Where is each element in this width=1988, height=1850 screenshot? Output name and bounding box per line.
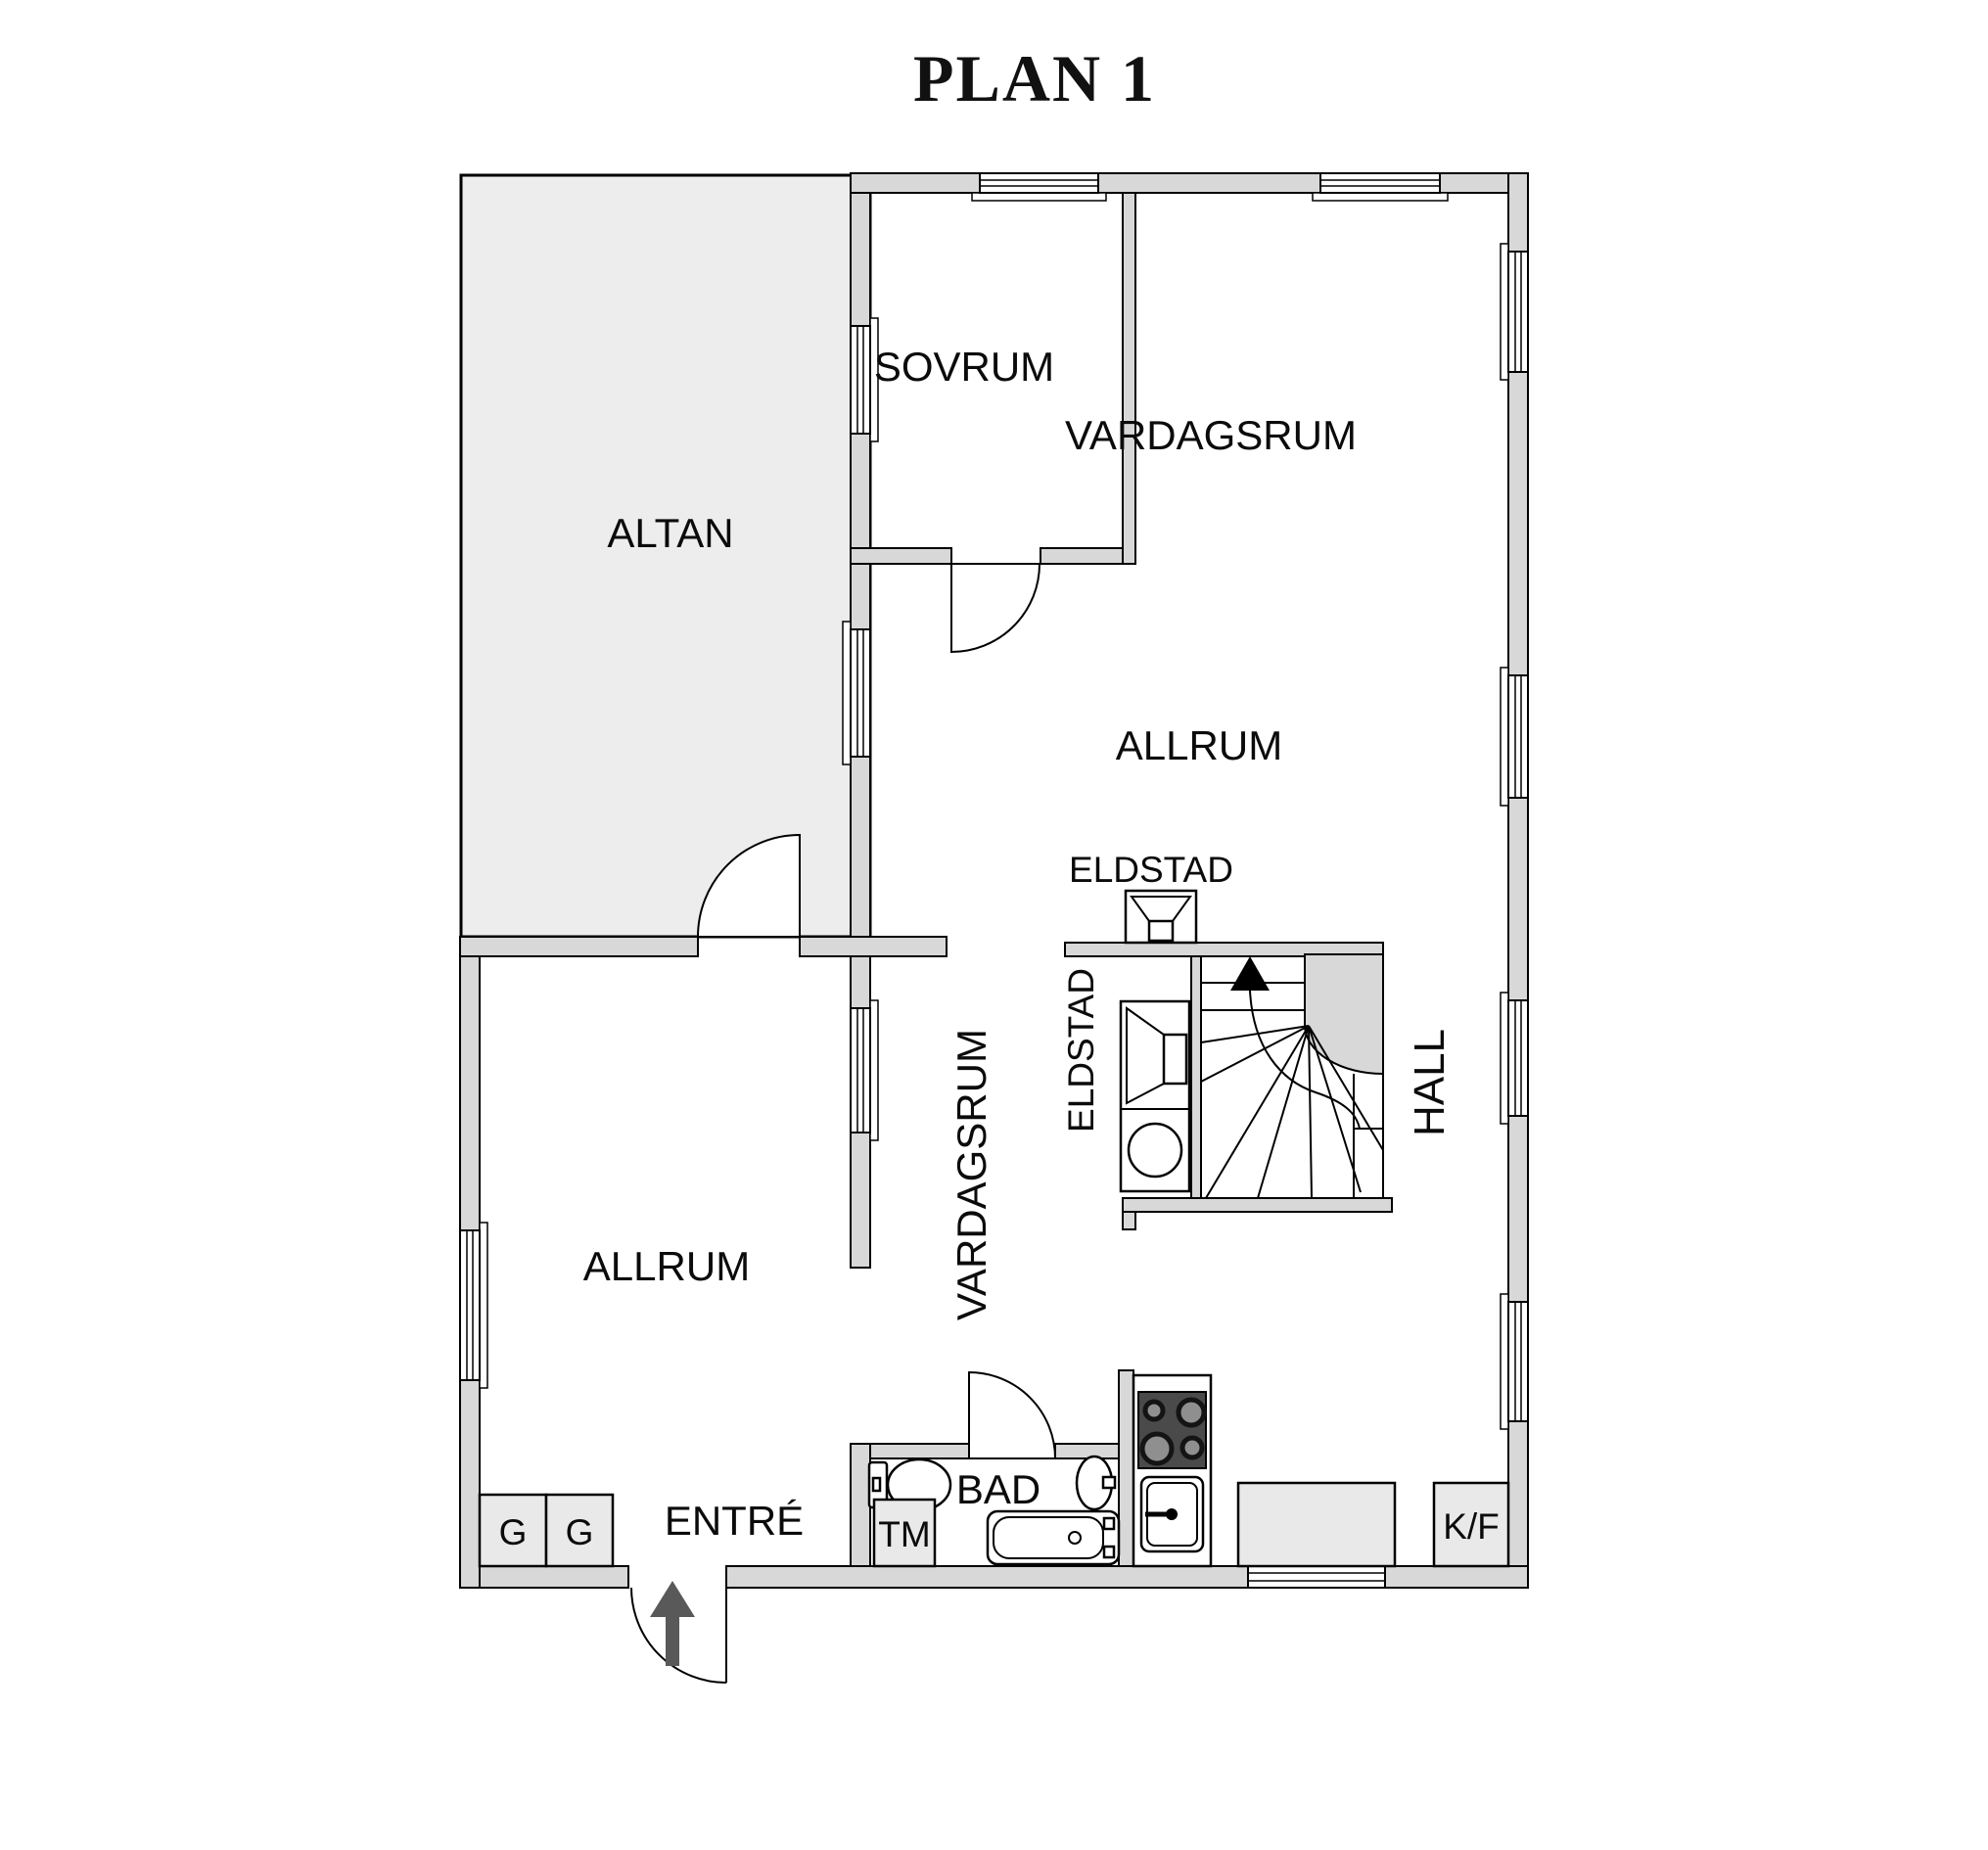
wall-bottom-2	[726, 1566, 1248, 1588]
window-right-4	[1501, 1294, 1528, 1429]
label-sovrum: SOVRUM	[874, 344, 1054, 390]
wall-sovrum-2	[1040, 548, 1135, 564]
label-eldstad-top: ELDSTAD	[1069, 850, 1233, 890]
wall-right-4	[1508, 1116, 1528, 1302]
wall-right-5	[1508, 1421, 1528, 1588]
wall-bottom-1	[460, 1566, 628, 1588]
label-eldstad-left: ELDSTAD	[1061, 968, 1101, 1133]
label-entre: ENTRÉ	[665, 1498, 804, 1544]
fireplace-top	[1126, 891, 1196, 943]
floor-plan-page: PLAN 1	[0, 0, 1988, 1850]
wall-left-2	[460, 1380, 480, 1588]
wall-stair-bottom	[1123, 1198, 1392, 1212]
wall-right-2	[1508, 372, 1528, 675]
wall-top-2	[1098, 173, 1320, 193]
label-allrum-center: ALLRUM	[1116, 722, 1282, 768]
label-bad: BAD	[956, 1466, 1040, 1512]
label-hall: HALL	[1406, 1029, 1454, 1136]
fireplace-left	[1121, 1001, 1189, 1191]
label-washing-machine: TM	[878, 1514, 930, 1554]
kitchen-sink-icon	[1141, 1477, 1203, 1551]
window-right-3-hall	[1501, 993, 1528, 1124]
wall-bad-top-1	[870, 1444, 969, 1458]
window-west-mid	[843, 622, 870, 764]
wall-stair-left	[1191, 956, 1201, 1198]
label-allrum-lower: ALLRUM	[583, 1243, 750, 1289]
window-left-allrum	[460, 1223, 487, 1388]
wall-right-3	[1508, 798, 1528, 1000]
window-west-lower	[851, 1000, 878, 1140]
wall-bad-right	[1119, 1370, 1133, 1566]
kitchen-counter	[1238, 1483, 1395, 1566]
wall-bad-top-2	[1055, 1444, 1119, 1458]
floor-plan-svg: PLAN 1	[0, 0, 1988, 1850]
window-right-1	[1501, 244, 1528, 380]
wall-stair-stub	[1123, 1212, 1135, 1229]
bathtub-icon	[988, 1511, 1119, 1564]
wall-west-4	[851, 956, 870, 1008]
wall-west-2	[851, 434, 870, 629]
label-fridge-freezer: K/F	[1443, 1506, 1500, 1547]
wall-west-1	[851, 193, 870, 326]
label-vardagsrum-top: VARDAGSRUM	[1065, 412, 1357, 458]
wall-west-6	[851, 1444, 870, 1566]
wall-left-1	[460, 937, 480, 1230]
label-wardrobe-2: G	[566, 1512, 594, 1552]
wall-mid-1	[460, 937, 698, 956]
window-sovrum-top	[972, 173, 1106, 201]
wall-sovrum-1	[851, 548, 951, 564]
altan-terrace	[461, 175, 870, 937]
label-vardagsrum-lower: VARDAGSRUM	[948, 1029, 994, 1320]
label-altan: ALTAN	[607, 510, 733, 556]
wall-top-1	[851, 173, 980, 193]
wall-right-1	[1508, 173, 1528, 252]
stove-flue-circle	[1129, 1124, 1181, 1177]
window-right-2	[1501, 668, 1528, 806]
wall-bottom-3	[1385, 1566, 1528, 1588]
wall-mid-2	[800, 937, 947, 956]
wall-west-3	[851, 757, 870, 937]
wall-divider	[1123, 193, 1135, 564]
wall-west-5	[851, 1133, 870, 1268]
page-title: PLAN 1	[913, 41, 1156, 116]
window-vardagsrum-top	[1313, 173, 1448, 201]
label-wardrobe-1: G	[499, 1512, 528, 1552]
